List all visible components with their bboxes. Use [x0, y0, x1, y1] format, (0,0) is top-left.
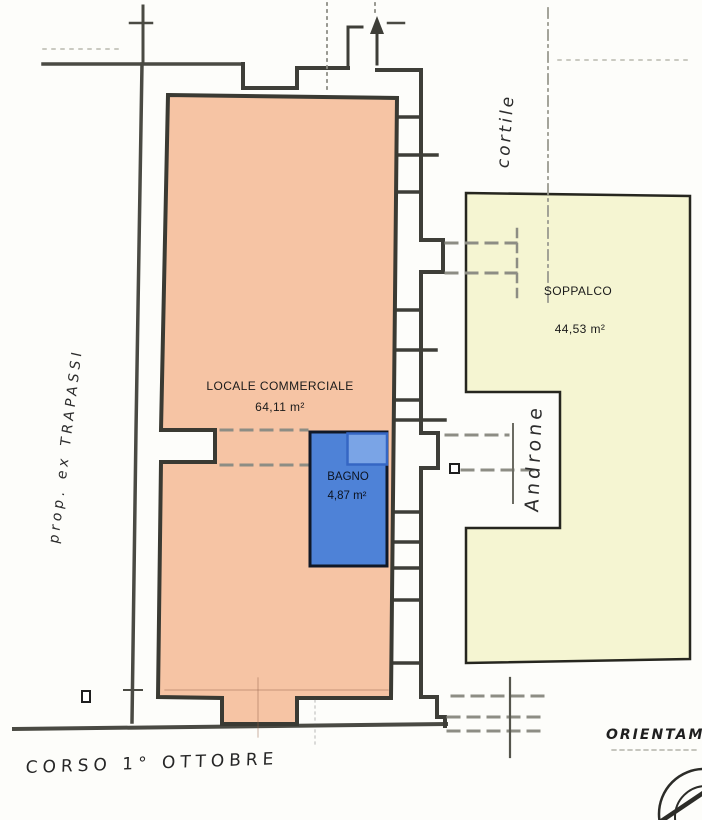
entrance-arrow-icon — [370, 16, 384, 64]
bagno-label: BAGNO — [327, 471, 369, 483]
soppalco-area: 44,53 m² — [555, 322, 606, 336]
soppalco-label: SOPPALCO — [544, 284, 612, 298]
hallway-annotation: Androne — [521, 403, 547, 513]
compass-icon — [648, 769, 702, 820]
scanned-floor-plan: LOCALE COMMERCIALE 64,11 m² BAGNO 4,87 m… — [0, 0, 702, 820]
locale-commerciale-label: LOCALE COMMERCIALE — [206, 379, 353, 393]
door-symbol-androne — [450, 464, 459, 473]
floor-plan-drawing — [0, 0, 702, 820]
building-top-walls — [243, 27, 421, 88]
door-symbol-left — [82, 691, 90, 702]
room-soppalco — [466, 193, 690, 663]
bagno-shower-box — [348, 434, 388, 465]
locale-commerciale-area: 64,11 m² — [255, 400, 305, 414]
bagno-area: 4,87 m² — [328, 490, 367, 502]
orientation-label: ORIENTAME — [606, 727, 702, 743]
wall-hook — [348, 27, 362, 68]
